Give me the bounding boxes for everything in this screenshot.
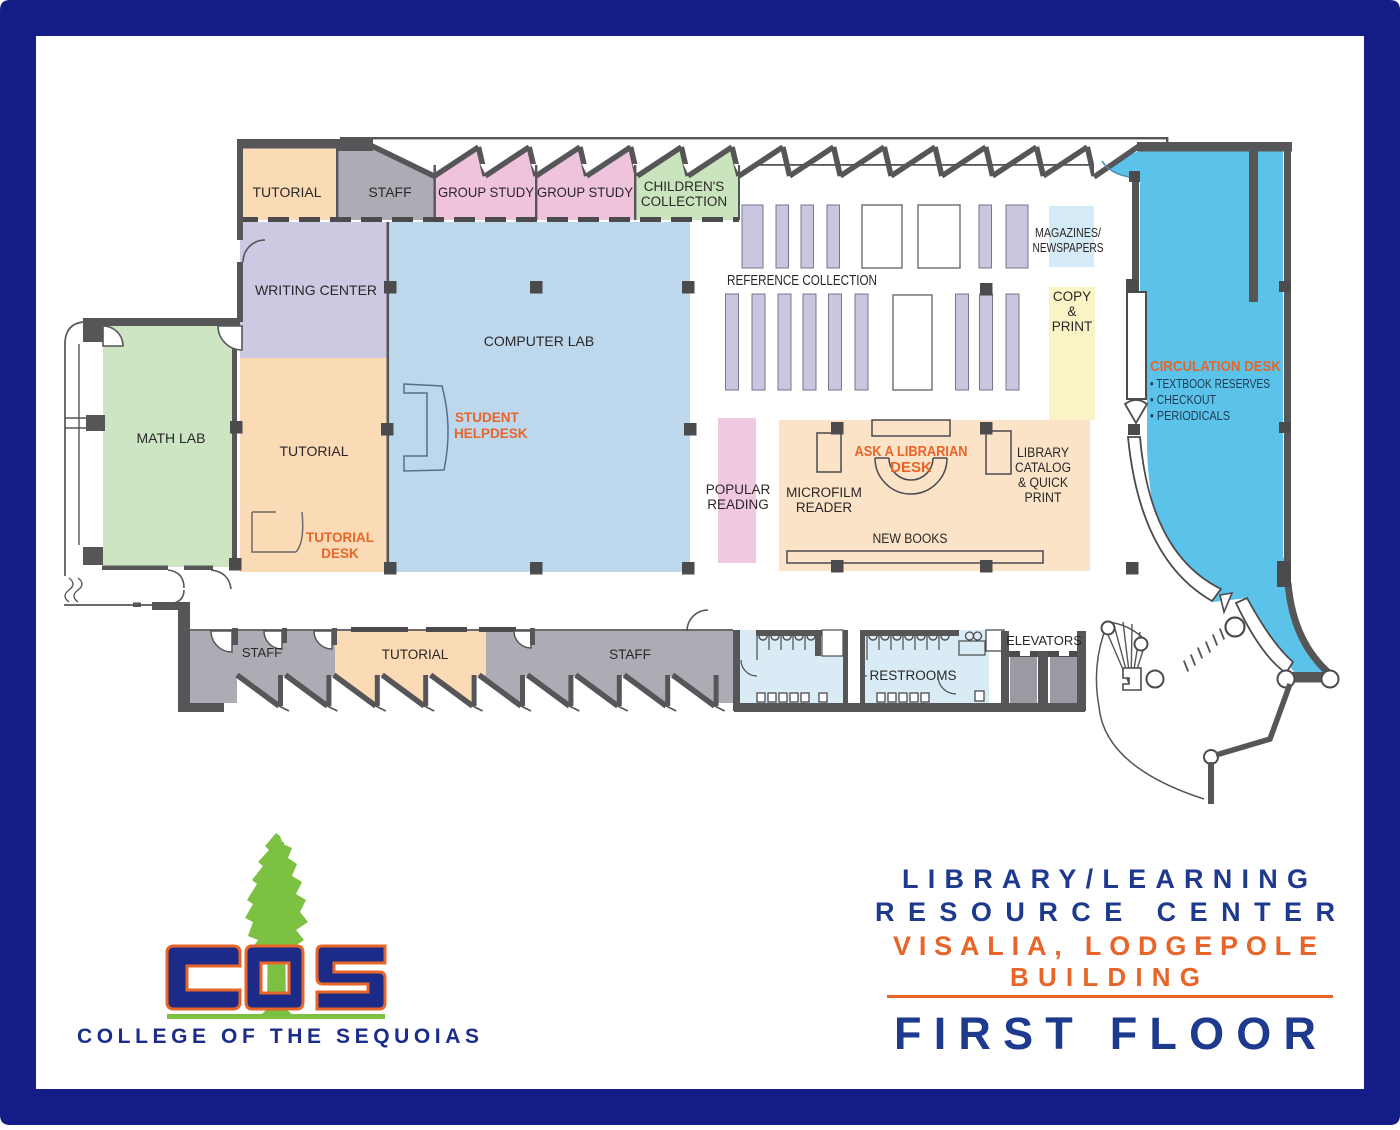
- svg-text:READING: READING: [707, 497, 769, 512]
- svg-text:COLLECTION: COLLECTION: [641, 194, 727, 209]
- svg-text:• PERIODICALS: • PERIODICALS: [1150, 409, 1230, 423]
- svg-text:GROUP STUDY: GROUP STUDY: [537, 184, 634, 200]
- svg-text:MICROFILM: MICROFILM: [786, 485, 862, 500]
- svg-text:NEW BOOKS: NEW BOOKS: [873, 531, 948, 546]
- svg-text:STUDENT: STUDENT: [455, 410, 520, 425]
- svg-text:PRINT: PRINT: [1025, 490, 1062, 505]
- svg-text:DESK: DESK: [321, 546, 359, 561]
- svg-text:STAFF: STAFF: [368, 184, 411, 200]
- svg-text:MAGAZINES/: MAGAZINES/: [1035, 225, 1101, 240]
- svg-text:LIBRARY: LIBRARY: [1017, 445, 1069, 460]
- svg-text:NEWSPAPERS: NEWSPAPERS: [1033, 240, 1104, 255]
- svg-text:TUTORIAL: TUTORIAL: [280, 443, 349, 459]
- svg-text:REFERENCE COLLECTION: REFERENCE COLLECTION: [727, 273, 877, 289]
- svg-text:TUTORIAL: TUTORIAL: [253, 184, 322, 200]
- svg-text:CATALOG: CATALOG: [1015, 460, 1071, 475]
- svg-text:GROUP STUDY: GROUP STUDY: [438, 184, 535, 200]
- svg-text:TUTORIAL: TUTORIAL: [382, 647, 449, 662]
- svg-text:RESTROOMS: RESTROOMS: [869, 668, 956, 683]
- svg-text:PRINT: PRINT: [1052, 319, 1093, 334]
- svg-text:CIRCULATION DESK: CIRCULATION DESK: [1150, 358, 1281, 375]
- svg-text:TUTORIAL: TUTORIAL: [306, 530, 374, 545]
- svg-text:• CHECKOUT: • CHECKOUT: [1150, 393, 1216, 407]
- svg-text:COLLEGE OF THE SEQUOIAS: COLLEGE OF THE SEQUOIAS: [77, 1025, 479, 1048]
- svg-text:ELEVATORS: ELEVATORS: [1006, 633, 1082, 648]
- svg-text:POPULAR: POPULAR: [706, 482, 771, 497]
- svg-text:MATH LAB: MATH LAB: [137, 430, 206, 446]
- svg-text:• TEXTBOOK RESERVES: • TEXTBOOK RESERVES: [1150, 377, 1270, 391]
- svg-text:HELPDESK: HELPDESK: [454, 426, 528, 441]
- svg-text:&: &: [1067, 304, 1076, 319]
- svg-text:STAFF: STAFF: [609, 647, 651, 662]
- svg-text:ASK A LIBRARIAN: ASK A LIBRARIAN: [855, 443, 968, 460]
- svg-text:& QUICK: & QUICK: [1018, 475, 1068, 490]
- svg-text:LIBRARY/LEARNING: LIBRARY/LEARNING: [902, 864, 1308, 894]
- svg-text:COMPUTER LAB: COMPUTER LAB: [484, 333, 594, 349]
- svg-text:WRITING CENTER: WRITING CENTER: [255, 282, 377, 298]
- svg-text:CHILDREN'S: CHILDREN'S: [644, 179, 725, 194]
- svg-text:DESK: DESK: [890, 459, 932, 476]
- svg-text:STAFF: STAFF: [242, 645, 282, 660]
- svg-text:READER: READER: [796, 500, 853, 515]
- svg-text:COPY: COPY: [1053, 289, 1091, 304]
- svg-text:RESOURCE CENTER: RESOURCE CENTER: [875, 897, 1335, 927]
